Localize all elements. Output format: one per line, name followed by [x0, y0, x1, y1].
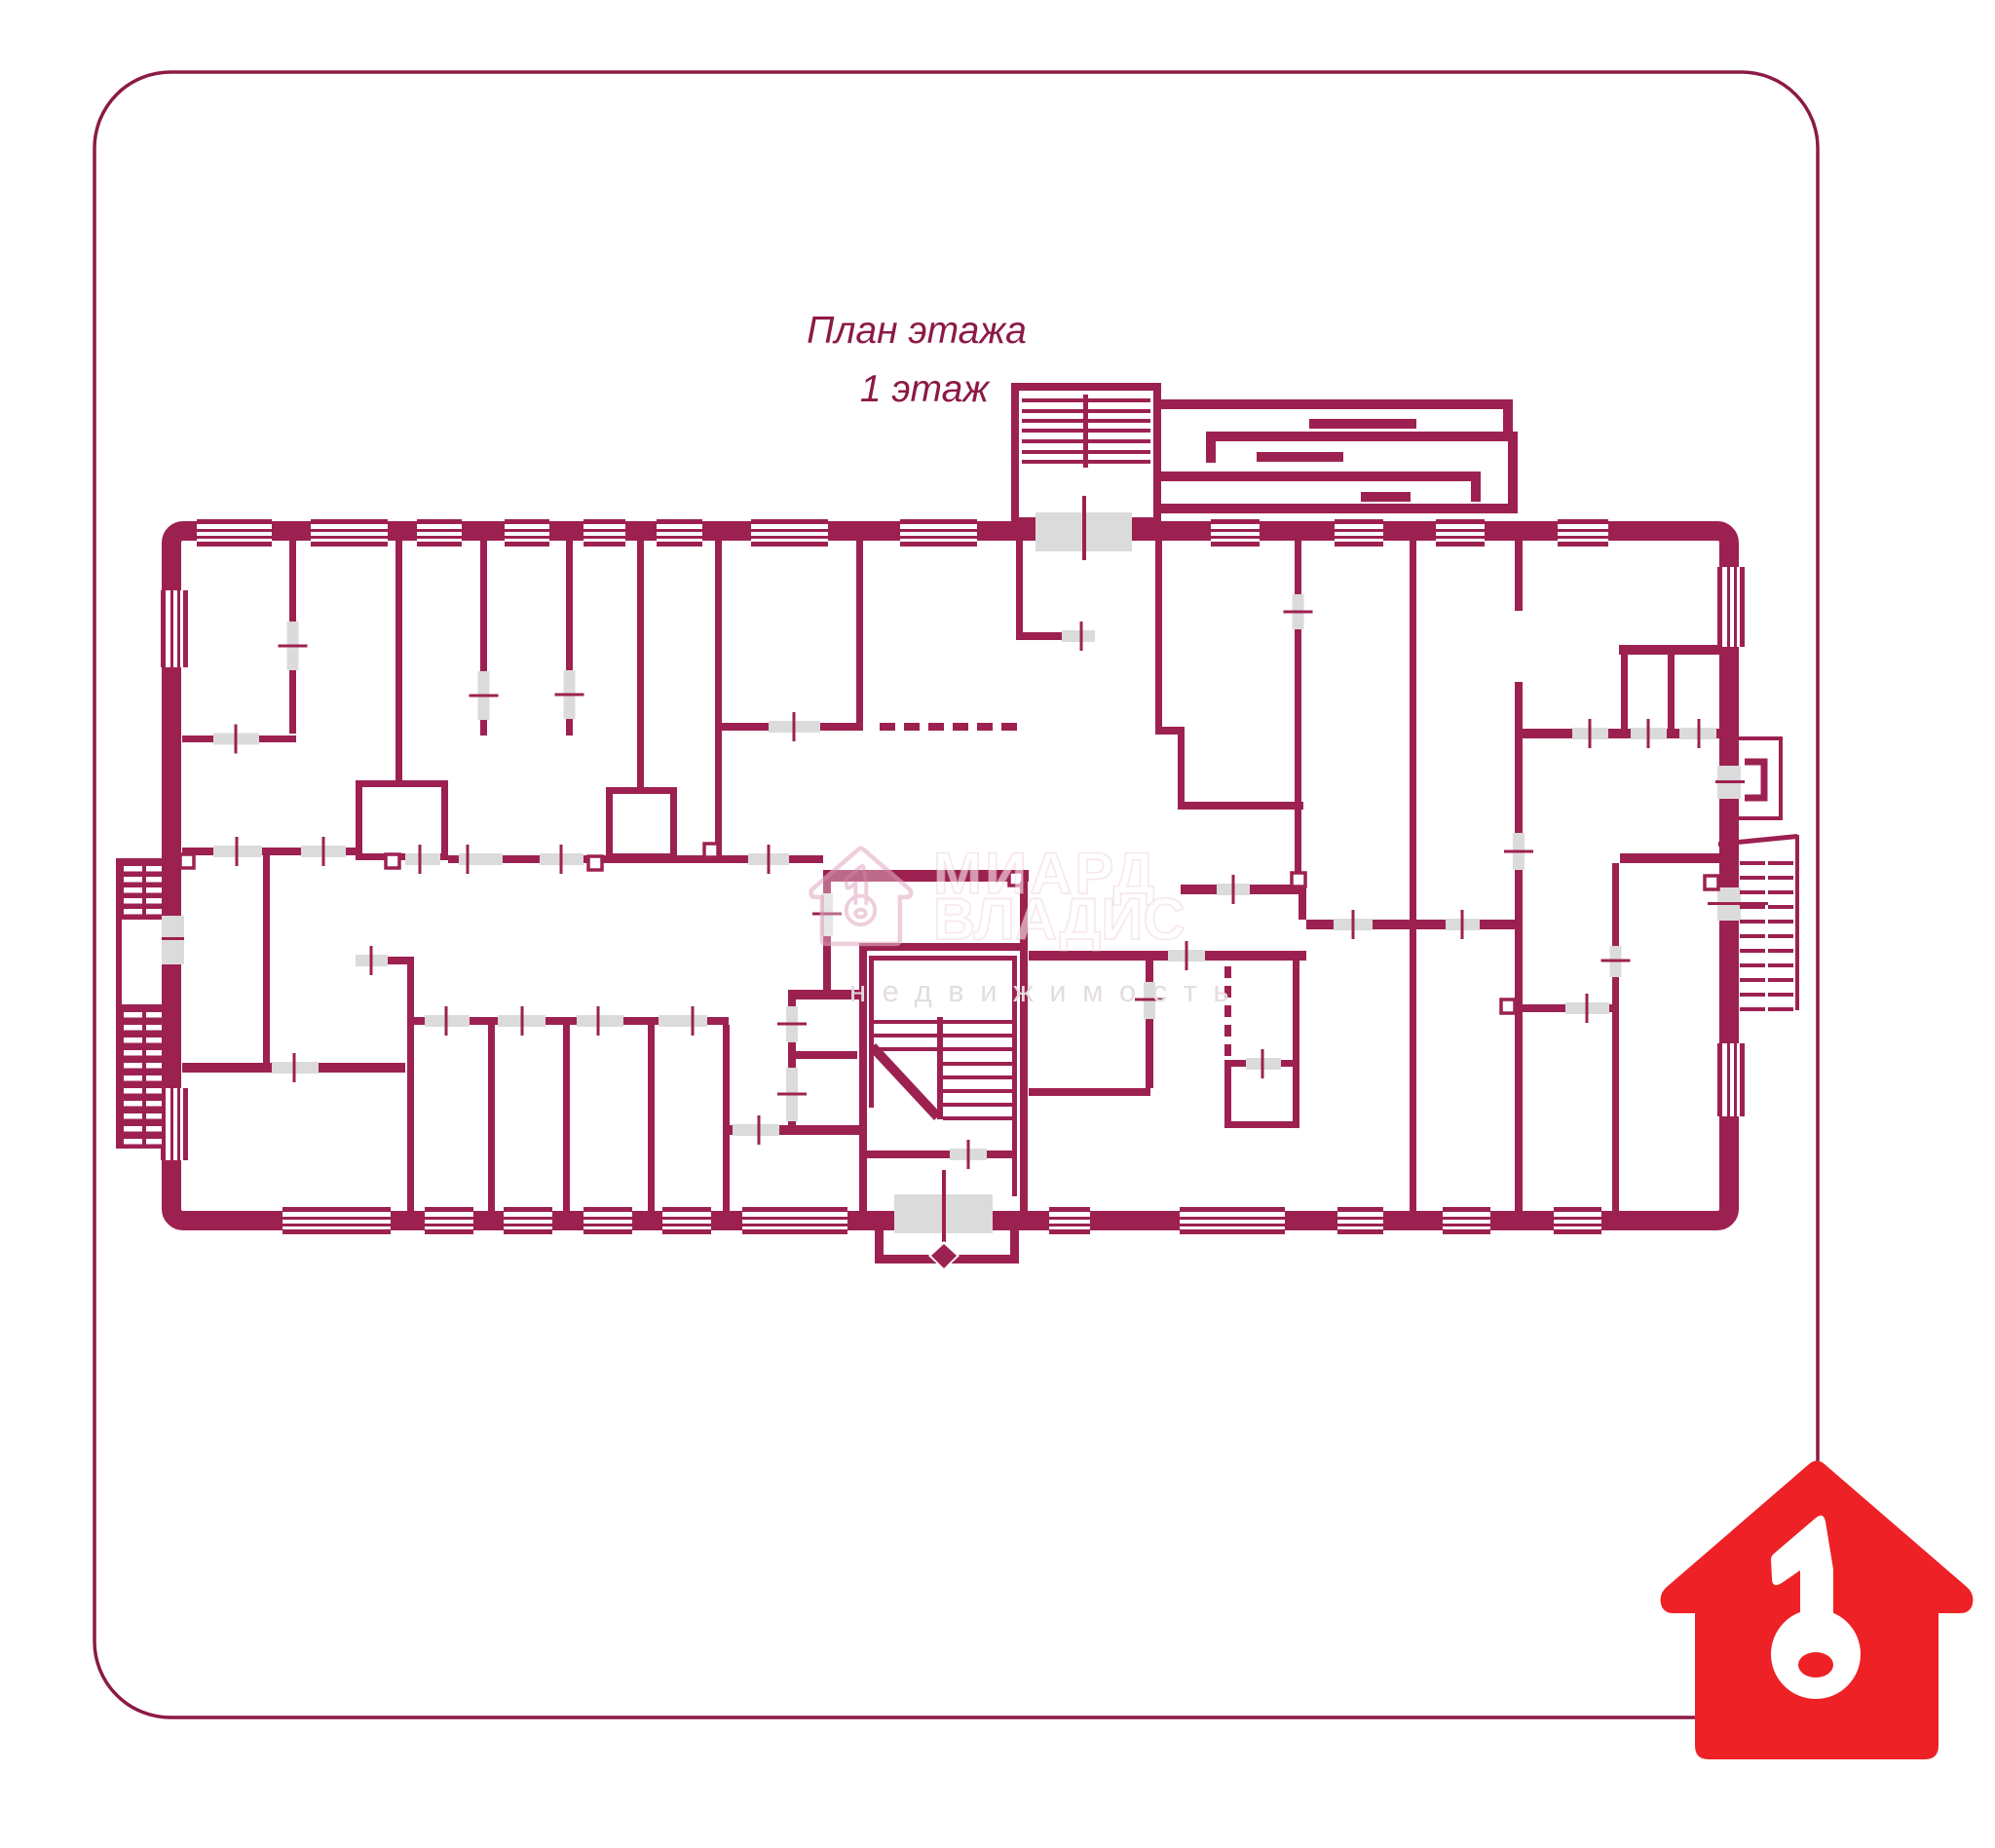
svg-text:План этажа: План этажа	[807, 310, 1027, 352]
svg-text:1 этаж: 1 этаж	[860, 368, 991, 410]
svg-text:недвижимость: недвижимость	[849, 974, 1245, 1008]
svg-text:ВЛАДИС: ВЛАДИС	[933, 886, 1186, 952]
